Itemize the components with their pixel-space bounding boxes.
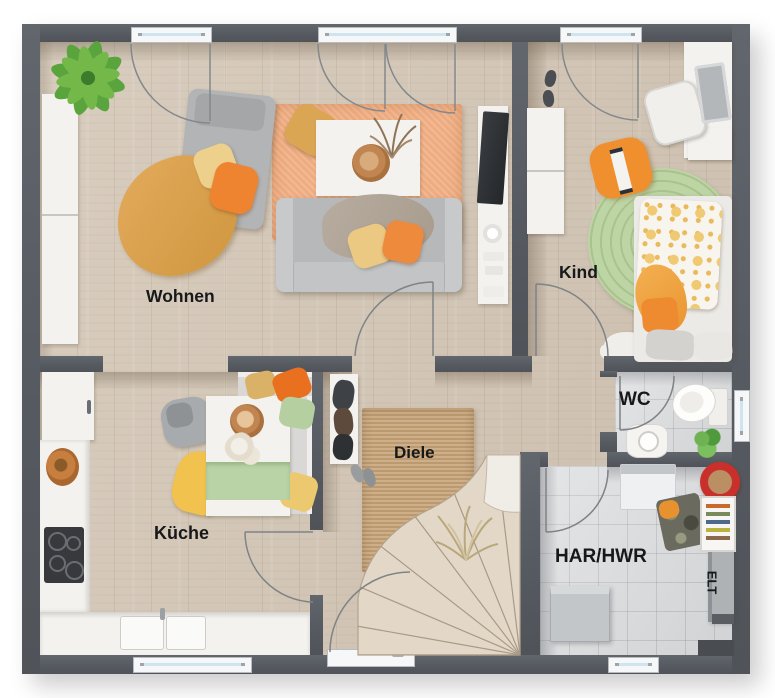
kids-pillow-white: [693, 331, 733, 362]
window-glass: [140, 663, 245, 666]
serving-tray: [352, 144, 390, 182]
sofa-armrest-left: [276, 198, 293, 292]
room-label-diele: Diele: [394, 443, 435, 463]
wall-mid-a: [40, 356, 103, 372]
coat: [331, 379, 356, 412]
window-wc: [734, 390, 750, 442]
burner: [65, 561, 84, 580]
sofa-armrest-right: [445, 198, 462, 292]
table-runner: [206, 462, 290, 500]
floor-plan: Wohnen Kind Küche Diele WC HAR/HWR ELT: [0, 0, 775, 698]
cabinet-divider: [42, 214, 78, 216]
chair-cushion: [165, 401, 195, 429]
toilet-seat: [677, 388, 706, 415]
kids-pillow-gray: [645, 329, 695, 361]
window-kueche: [133, 657, 252, 673]
washer-panel: [621, 465, 675, 474]
living-cabinet: [42, 94, 78, 344]
sink-basin: [166, 616, 206, 650]
coat-rack-panel: [330, 374, 358, 464]
tape-roll: [483, 224, 502, 243]
freezer-box: [550, 586, 610, 642]
shelf-item: [485, 266, 503, 275]
wall-outer-right: [732, 24, 750, 674]
lounge-headrest: [193, 93, 266, 132]
burner: [48, 532, 67, 551]
wc-plant: [690, 426, 724, 458]
elt-panel-base: [712, 614, 734, 624]
dried-flowers: [224, 432, 262, 468]
fridge: [42, 372, 94, 440]
faucet: [160, 608, 165, 620]
door-handle: [392, 653, 404, 657]
laundry-cloth: [657, 499, 680, 521]
wall-wc-left-stub: [600, 432, 617, 452]
nook-pillow-sage: [278, 395, 317, 430]
wardrobe-divider: [527, 170, 564, 172]
room-label-elt: ELT: [704, 571, 719, 595]
tool: [706, 504, 730, 508]
room-label-wohnen: Wohnen: [146, 286, 215, 307]
tool: [706, 536, 730, 540]
window-wohnen-double: [318, 27, 457, 43]
burner: [66, 536, 81, 551]
window-wohnen-left: [131, 27, 212, 43]
wall-mid-c: [435, 356, 532, 372]
burner: [49, 555, 66, 572]
sink-basin: [120, 616, 164, 650]
room-label-wc: WC: [619, 389, 651, 411]
tool-shelf: [700, 496, 736, 552]
window-glass: [740, 397, 743, 435]
kids-wardrobe: [527, 108, 564, 234]
window-har: [608, 657, 659, 673]
hallway-jute-rug: [362, 408, 474, 572]
window-glass: [567, 33, 635, 36]
wall-wohnen-kind: [512, 42, 528, 356]
wall-har-top-stub: [540, 452, 548, 467]
sink-bowl: [638, 431, 659, 452]
wall-kueche-diele-bottom: [310, 595, 323, 655]
room-label-kind: Kind: [559, 262, 598, 283]
window-glass: [615, 663, 652, 666]
room-label-kueche: Küche: [154, 523, 209, 544]
window-glass: [325, 33, 450, 36]
cooktop: [44, 527, 84, 583]
entrance-door: [327, 649, 415, 667]
room-label-har-hwr: HAR/HWR: [555, 546, 647, 568]
wall-diele-har: [520, 452, 540, 655]
coat: [332, 433, 354, 461]
fridge-handle: [87, 400, 91, 414]
shelf-item: [483, 252, 504, 261]
tool: [706, 512, 730, 516]
window-glass: [138, 33, 205, 36]
coat: [333, 407, 355, 437]
tool: [706, 528, 730, 532]
wall-niche: [698, 640, 734, 656]
shelf-item: [483, 286, 504, 297]
toy: [609, 147, 633, 195]
wall-wc-left-jamb: [600, 371, 617, 377]
wall-outer-left: [22, 24, 40, 674]
decor-bowl: [46, 448, 79, 486]
tool: [706, 520, 730, 524]
wc-sink: [626, 424, 668, 458]
kids-orange-pillow: [641, 296, 680, 333]
window-kind: [560, 27, 642, 43]
